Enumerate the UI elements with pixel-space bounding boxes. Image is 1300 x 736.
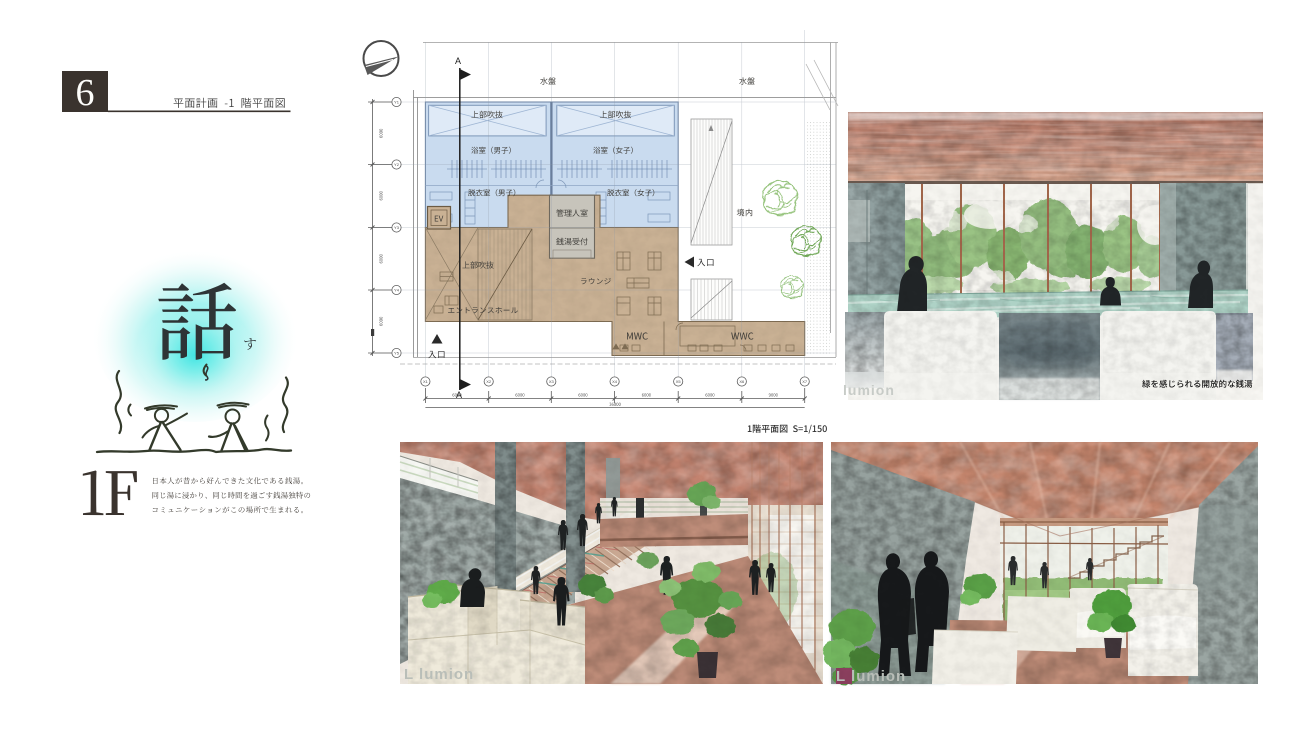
- svg-text:X4: X4: [612, 379, 618, 384]
- svg-text:X5: X5: [676, 379, 682, 384]
- svg-text:L lumion: L lumion: [836, 668, 906, 685]
- svg-text:X7: X7: [802, 379, 808, 384]
- svg-text:6: 6: [76, 72, 95, 114]
- svg-text:X2: X2: [486, 379, 492, 384]
- svg-text:L lumion: L lumion: [404, 666, 474, 683]
- svg-text:X6: X6: [739, 379, 745, 384]
- svg-text:Y1: Y1: [394, 100, 400, 105]
- svg-text:Y2: Y2: [394, 162, 400, 167]
- svg-text:X3: X3: [549, 379, 555, 384]
- svg-text:Y4: Y4: [394, 288, 400, 293]
- svg-text:lumion: lumion: [843, 382, 895, 398]
- svg-text:Y5: Y5: [394, 351, 400, 356]
- svg-text:X1: X1: [423, 379, 429, 384]
- svg-text:Y3: Y3: [394, 225, 400, 230]
- svg-text:A: A: [455, 56, 461, 66]
